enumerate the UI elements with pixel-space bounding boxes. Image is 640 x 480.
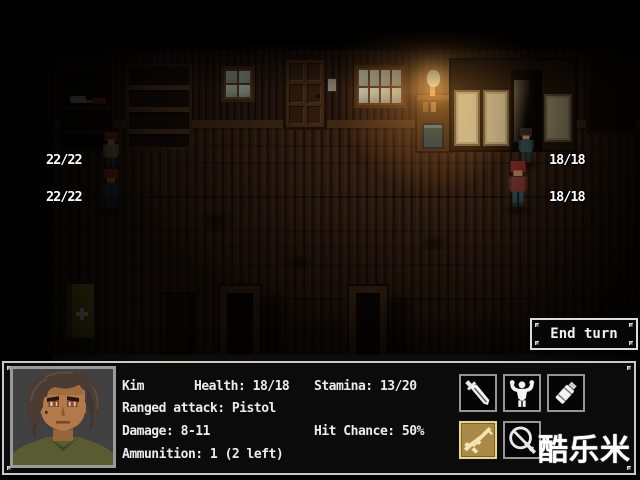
red-item — [92, 98, 106, 104]
unit-ally-2[interactable] — [99, 168, 123, 214]
window-pane — [381, 70, 390, 86]
right-dark-door — [586, 46, 636, 134]
rifle-action-button[interactable] — [459, 421, 497, 459]
floor-stain — [420, 234, 448, 252]
window-pane — [381, 88, 390, 104]
shelf-board — [129, 129, 189, 134]
rivet — [627, 366, 631, 370]
rivet — [629, 323, 633, 327]
window-pane — [226, 85, 237, 97]
wall-shadow — [260, 298, 282, 354]
bones-item — [70, 96, 86, 103]
end-turn-label: End turn — [550, 326, 617, 342]
lamp-light — [427, 70, 440, 87]
floor-stain — [196, 208, 236, 234]
machine-side — [66, 284, 72, 338]
room-view: 22/22 22/22 18/18 18/18 End turn — [0, 0, 640, 362]
throwable-icon — [549, 376, 583, 410]
no-attack-action-button[interactable] — [503, 421, 541, 459]
throwable-action-button[interactable] — [547, 374, 585, 412]
shelf-board — [129, 85, 189, 90]
wall-shadow — [387, 298, 409, 354]
window-pane — [392, 88, 401, 104]
wardrobe — [449, 58, 577, 152]
window-pane — [359, 88, 368, 104]
door-panel — [307, 63, 322, 81]
rivet — [535, 341, 539, 345]
knife-action-button[interactable] — [459, 374, 497, 412]
large-window — [354, 65, 406, 108]
shelf-board — [64, 106, 110, 109]
south-doorway-right — [349, 286, 387, 356]
small-window — [221, 66, 255, 102]
portrait-kim — [13, 369, 113, 465]
light-switch — [327, 78, 337, 92]
unit-ally-1[interactable] — [100, 132, 122, 172]
melee-icon — [505, 376, 539, 410]
door-panel — [289, 84, 304, 102]
melee-action-button[interactable] — [503, 374, 541, 412]
hp-label-ally-1: 22/22 — [46, 153, 92, 167]
character-name: Kim — [122, 379, 144, 394]
rivet — [535, 323, 539, 327]
wardrobe-door — [454, 90, 480, 146]
window-pane — [226, 71, 237, 83]
hit-chance-stat: Hit Chance: 50% — [314, 424, 424, 439]
yellow-machine — [64, 282, 96, 340]
back-door — [283, 57, 327, 130]
dark-locker — [160, 292, 194, 354]
shelf-board — [129, 107, 189, 112]
rivet — [629, 341, 633, 345]
floor-stain — [282, 252, 316, 274]
character-panel: Kim Health: 18/18 Stamina: 13/20 Ranged … — [2, 361, 636, 475]
window-pane — [239, 71, 250, 83]
unit-enemy-2[interactable] — [505, 160, 531, 210]
door-knob — [316, 94, 320, 98]
window-pane — [392, 70, 401, 86]
hp-label-enemy-2: 18/18 — [549, 190, 595, 204]
stamina-stat: Stamina: 13/20 — [314, 379, 417, 394]
bottle — [431, 102, 436, 112]
door-panel — [289, 63, 304, 81]
portrait-frame — [10, 366, 116, 468]
end-turn-button[interactable]: End turn — [530, 318, 638, 350]
door-panel — [307, 106, 322, 124]
lamp-stand — [415, 93, 453, 153]
door-panel — [289, 106, 304, 124]
no-attack-icon — [505, 423, 539, 457]
window-pane — [370, 88, 379, 104]
health-stat: Health: 18/18 — [194, 379, 289, 394]
damage-stat: Damage: 8-11 — [122, 424, 210, 439]
lamp-post — [430, 86, 435, 96]
cross-icon — [76, 308, 88, 320]
ranged-attack-stat: Ranged attack: Pistol — [122, 401, 276, 416]
window-pane — [370, 70, 379, 86]
bottle — [423, 102, 428, 112]
tv-screen — [422, 123, 444, 149]
ammunition-stat: Ammunition: 1 (2 left) — [122, 447, 283, 462]
rifle-icon — [461, 423, 495, 457]
knife-icon — [461, 376, 495, 410]
hp-label-ally-2: 22/22 — [46, 190, 92, 204]
game-screen: 22/22 22/22 18/18 18/18 End turn — [0, 0, 640, 480]
watermark: 酷乐米 — [538, 435, 631, 467]
wardrobe-door — [483, 90, 509, 146]
bookshelf — [126, 64, 192, 150]
window-pane — [239, 85, 250, 97]
south-doorway-left — [220, 286, 260, 356]
hp-label-enemy-1: 18/18 — [549, 153, 595, 167]
window-pane — [359, 70, 368, 86]
wardrobe-door — [544, 94, 572, 142]
